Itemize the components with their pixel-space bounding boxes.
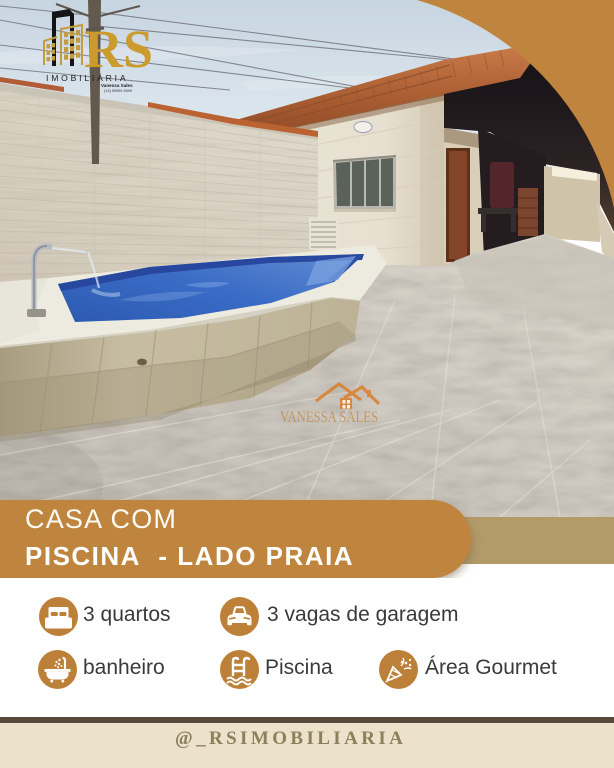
svg-text:RS: RS	[84, 19, 153, 79]
svg-text:IMOBILIÁRIA: IMOBILIÁRIA	[46, 73, 128, 83]
svg-text:(13) 99999-9999: (13) 99999-9999	[104, 89, 132, 93]
svg-text:Vanessa Sales: Vanessa Sales	[101, 83, 133, 88]
svg-text:VANESSA SALES: VANESSA SALES	[280, 409, 378, 426]
